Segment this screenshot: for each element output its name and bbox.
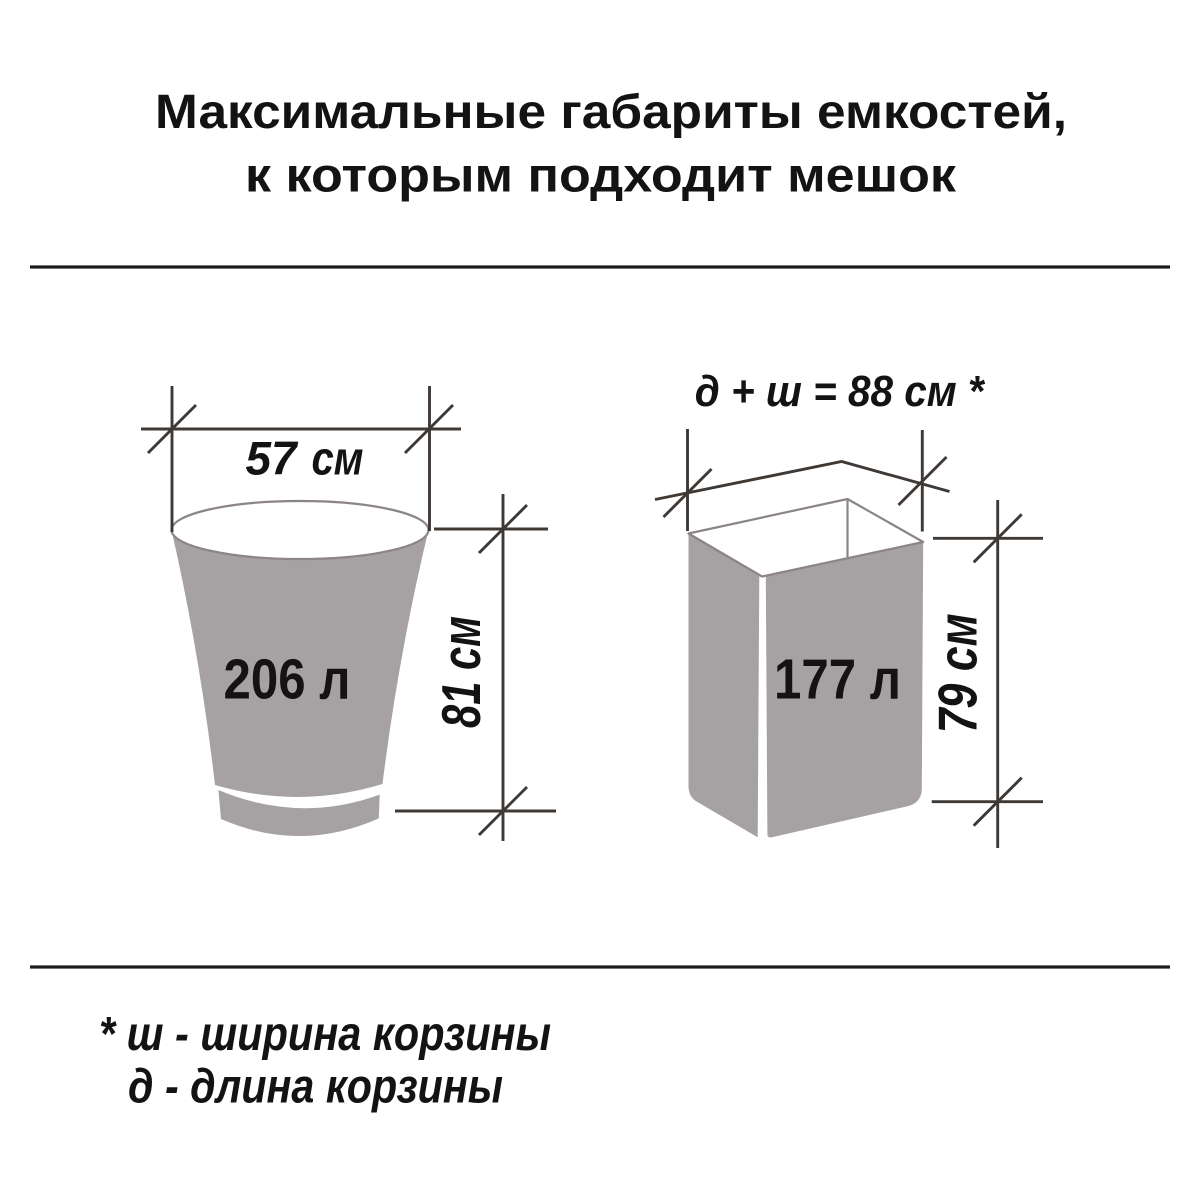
svg-text:* ш - ширина корзины: * ш - ширина корзины bbox=[99, 1008, 551, 1061]
svg-text:177 л: 177 л bbox=[774, 648, 901, 712]
svg-text:д - длина корзины: д - длина корзины bbox=[128, 1061, 503, 1114]
svg-text:см: см bbox=[312, 432, 364, 485]
svg-text:Максимальные габариты емкостей: Максимальные габариты емкостей, bbox=[155, 86, 1067, 139]
svg-text:81 см: 81 см bbox=[430, 616, 492, 728]
svg-text:206 л: 206 л bbox=[224, 648, 351, 712]
svg-text:к которым подходит мешок: к которым подходит мешок bbox=[245, 150, 957, 203]
svg-text:57: 57 bbox=[246, 432, 299, 485]
svg-text:79 см: 79 см bbox=[927, 613, 989, 733]
svg-text:д + ш = 88 см *: д + ш = 88 см * bbox=[695, 367, 986, 416]
